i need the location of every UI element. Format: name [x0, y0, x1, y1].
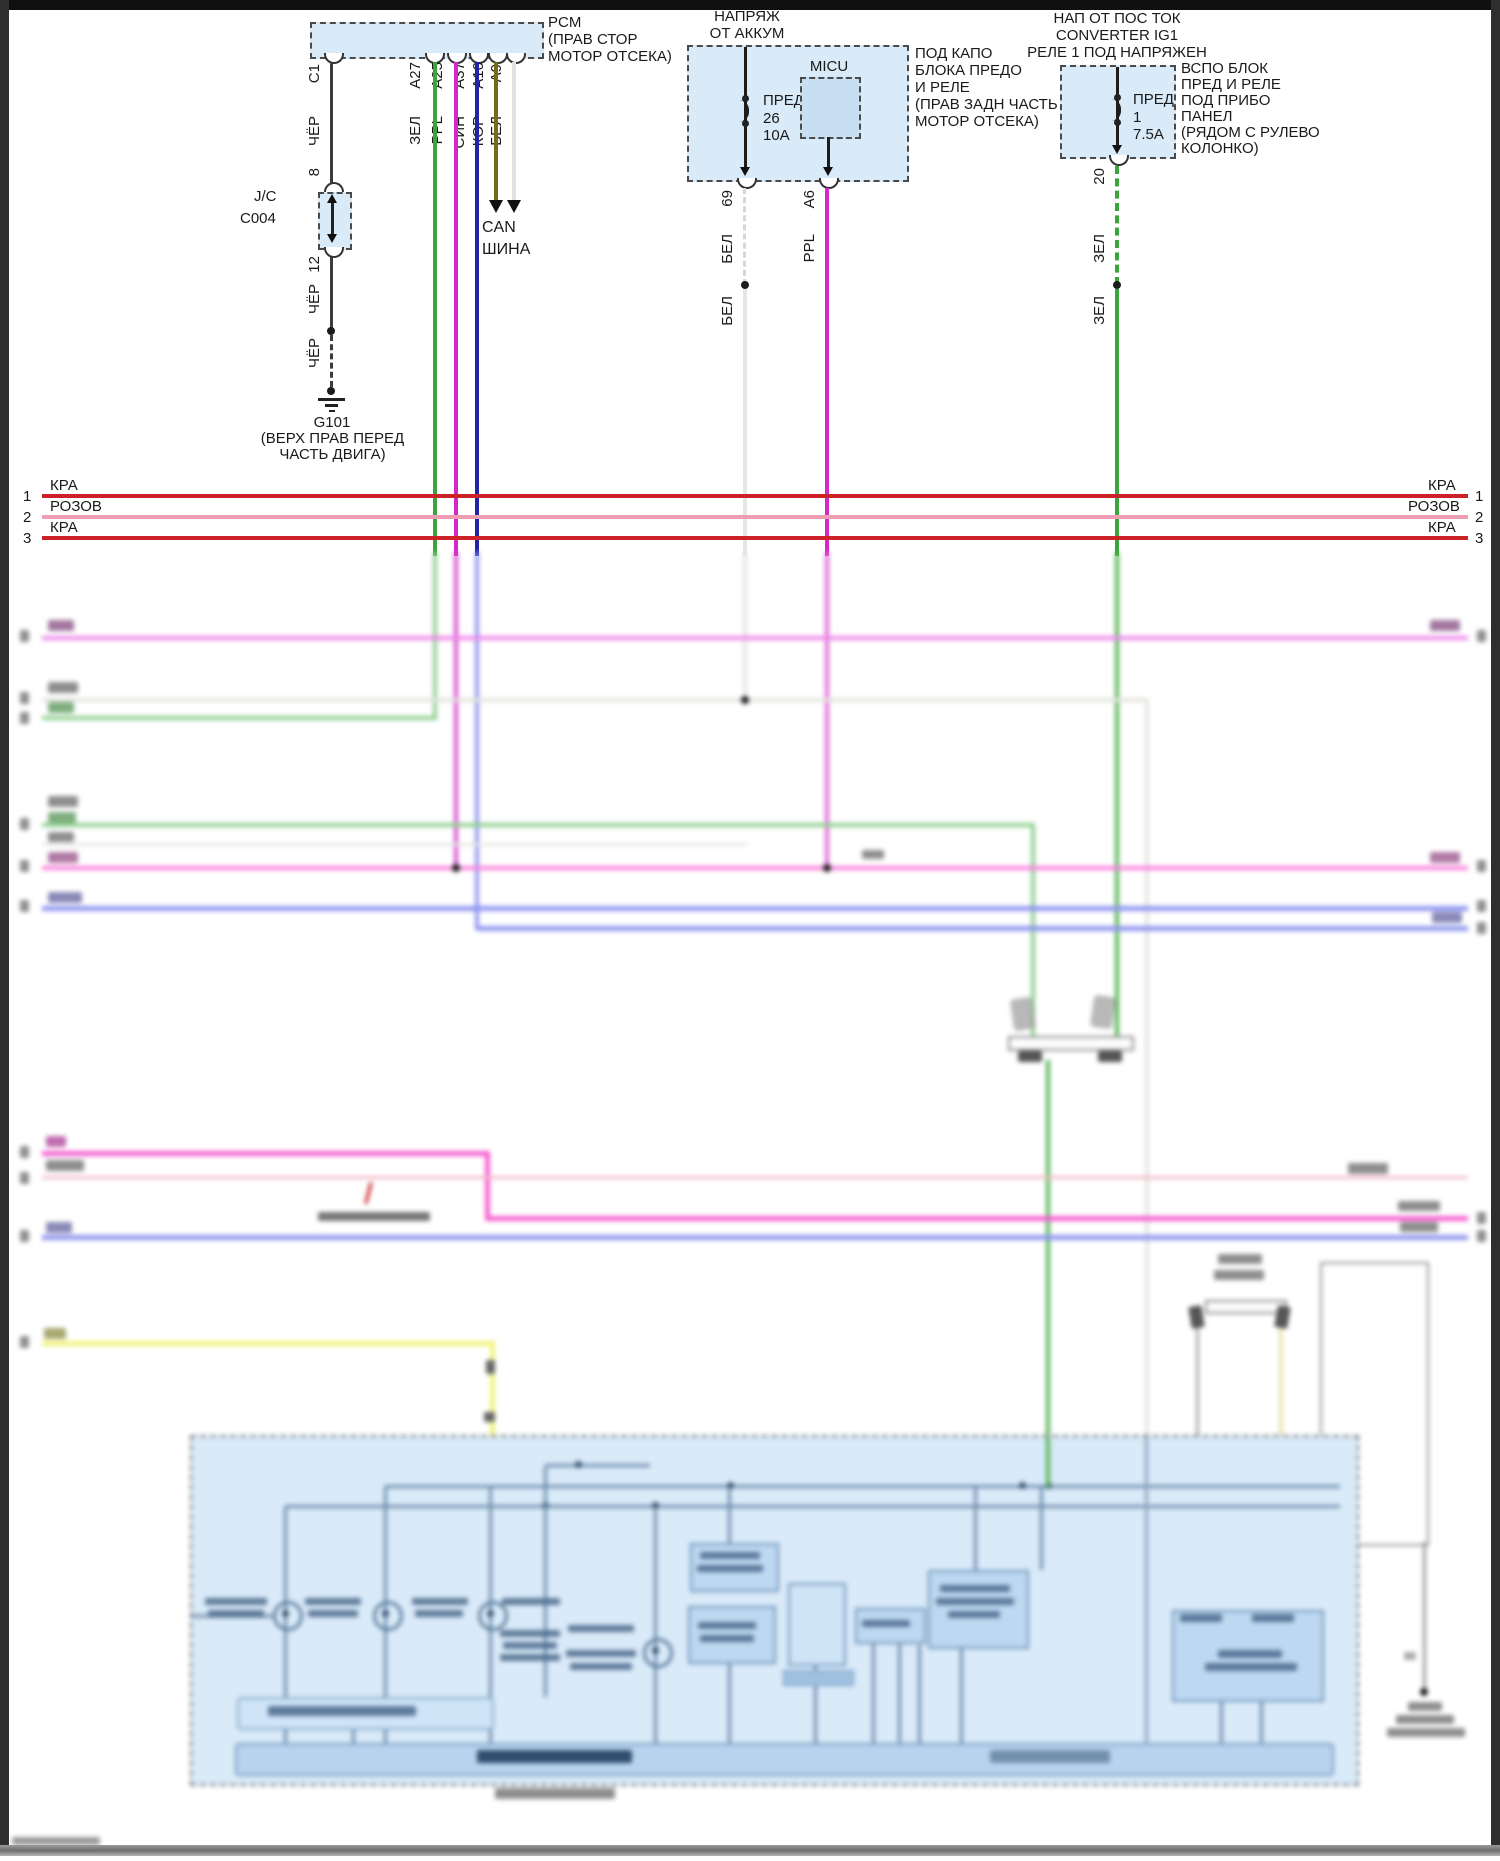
connector-bracket: [1010, 997, 1036, 1032]
module-subbox: [788, 1583, 846, 1666]
wire-brightpink-1153: [42, 1151, 489, 1156]
module-node: [373, 1601, 403, 1631]
blurred-label: [1400, 1222, 1438, 1232]
module-bus-1507: [285, 1505, 1340, 1508]
wire-white-845: [42, 843, 747, 846]
wire-periwinkle-928: [477, 926, 1468, 931]
blurred-label: [1398, 1201, 1440, 1211]
wire-periwinkle-908: [42, 906, 1468, 911]
blurred-label: [1430, 852, 1460, 863]
connector-pin: [1098, 1051, 1122, 1062]
ground-dot-right: [1420, 1688, 1428, 1696]
module-vline: [1260, 1698, 1263, 1743]
wire-a25-magenta-blur: [454, 552, 458, 868]
wire-a37-blue-blur: [475, 552, 479, 930]
module-vline: [654, 1507, 657, 1743]
connector-pin: [1018, 1051, 1042, 1062]
wire-ground-right: [1423, 1542, 1426, 1692]
junction-dot-bel: [741, 696, 749, 704]
module-vline: [1145, 1437, 1148, 1743]
module-vline: [728, 1487, 731, 1543]
module-vline: [918, 1645, 921, 1743]
blurred-tick: [20, 1172, 29, 1184]
wire-yellow-vert: [490, 1341, 495, 1437]
blurred-tick: [1477, 922, 1486, 934]
wire-green-below-connector: [1046, 1060, 1050, 1437]
module-vline: [1040, 1487, 1043, 1570]
module-dot: [1019, 1482, 1026, 1489]
module-node-dot: [487, 1610, 494, 1617]
figure-caption: [495, 1788, 615, 1799]
module-vline: [728, 1660, 731, 1743]
blurred-tick: [1477, 1230, 1486, 1242]
blurred-tick: [20, 630, 29, 642]
connector-bar: [1205, 1300, 1287, 1314]
blurred-label: [1218, 1254, 1262, 1264]
connector-pin: [1274, 1305, 1291, 1329]
blurred-tick: [20, 1336, 29, 1348]
blurred-tick: [20, 1146, 29, 1158]
blurred-label: [48, 796, 78, 807]
module-vline: [544, 1467, 547, 1697]
module-dot: [575, 1461, 582, 1468]
module-node-dot: [282, 1610, 289, 1617]
module-vline: [960, 1645, 963, 1743]
junction-dot-a25: [452, 864, 460, 872]
wire-brightpink-vert: [485, 1151, 490, 1220]
module-vline: [898, 1640, 901, 1743]
wire-zel-blur: [1115, 552, 1119, 1038]
blurred-label: [1387, 1728, 1465, 1737]
blurred-tick: [1477, 900, 1486, 912]
wire-palepink-1178: [42, 1176, 1468, 1179]
blurred-label: [1430, 620, 1460, 631]
blurred-tick: [20, 692, 29, 704]
wire-brightpink-1218: [485, 1216, 1468, 1221]
wire-pink-868: [42, 866, 1468, 870]
module-bus-1466: [545, 1464, 650, 1467]
blurred-label: [862, 850, 884, 859]
module-node: [478, 1601, 508, 1631]
wire-bel-blur: [743, 552, 747, 702]
blurred-tick: [20, 860, 29, 872]
blurred-label: [44, 1328, 66, 1339]
blurred-tick: [20, 818, 29, 830]
wire-yellow-1343: [42, 1341, 494, 1346]
connector-pin: [1188, 1305, 1205, 1329]
connector-bracket: [1090, 995, 1116, 1030]
blurred-label: [1432, 912, 1462, 923]
wire-violet-638: [42, 636, 1468, 640]
blurred-label: [48, 852, 78, 863]
blurred-label: [1214, 1270, 1264, 1280]
wire-cream-1280: [1279, 1328, 1283, 1437]
blurred-label: [48, 620, 74, 631]
module-node-dot: [382, 1610, 389, 1617]
blurred-label: [48, 812, 76, 823]
module-vline: [974, 1487, 977, 1570]
wire-a27-green-blur: [433, 552, 437, 718]
wire-periwinkle-1237: [42, 1235, 1468, 1240]
wire-mark: [484, 1412, 495, 1422]
module-bottom-bus: [235, 1743, 1334, 1776]
module-vline: [872, 1640, 875, 1743]
junction-dot-ppl: [823, 864, 831, 872]
blurred-label: [46, 1136, 66, 1147]
module-bus-caption: [990, 1750, 1110, 1763]
wiring-diagram-page: PCM (ПРАВ СТОР МОТОР ОТСЕКА) C1 A27 A25 …: [0, 0, 1500, 1861]
module-node: [273, 1601, 303, 1631]
wire-green-718: [42, 716, 437, 720]
module-vline: [1220, 1698, 1223, 1743]
blurred-label: [48, 702, 74, 713]
blurred-label: [1348, 1163, 1388, 1174]
blurred-tick: [20, 712, 29, 724]
wire-mark: [1404, 1652, 1416, 1660]
wire-white-vert-1145: [1145, 698, 1149, 1438]
blurred-label: [46, 1160, 84, 1171]
blurred-tick: [1477, 860, 1486, 872]
blurred-label: [1396, 1715, 1454, 1724]
module-vline-green: [1046, 1437, 1050, 1487]
blurred-label: [1408, 1702, 1442, 1711]
blurred-label: [48, 832, 74, 842]
blurred-section: [0, 0, 1500, 1861]
module-node-dot: [652, 1647, 659, 1654]
wire-white-700: [42, 698, 1148, 702]
wire-mark: [486, 1360, 495, 1374]
blurred-tick: [20, 1230, 29, 1242]
blurred-label: [48, 682, 78, 693]
blurred-tick: [20, 900, 29, 912]
connector-bar: [1008, 1036, 1134, 1051]
annotation-caption: [318, 1212, 430, 1221]
corner-note: [12, 1837, 100, 1845]
wire-green-825: [42, 823, 1035, 827]
blurred-tick: [1477, 1212, 1486, 1224]
module-bus-1487: [385, 1485, 1340, 1488]
module-subbox: [928, 1570, 1029, 1649]
module-node: [643, 1638, 673, 1668]
module-bus-caption: [477, 1750, 632, 1763]
module-bar: [783, 1670, 854, 1686]
red-annotation-mark: [364, 1182, 372, 1204]
blurred-label: [48, 892, 82, 903]
blurred-tick: [1477, 630, 1486, 642]
blurred-label: [46, 1222, 72, 1233]
